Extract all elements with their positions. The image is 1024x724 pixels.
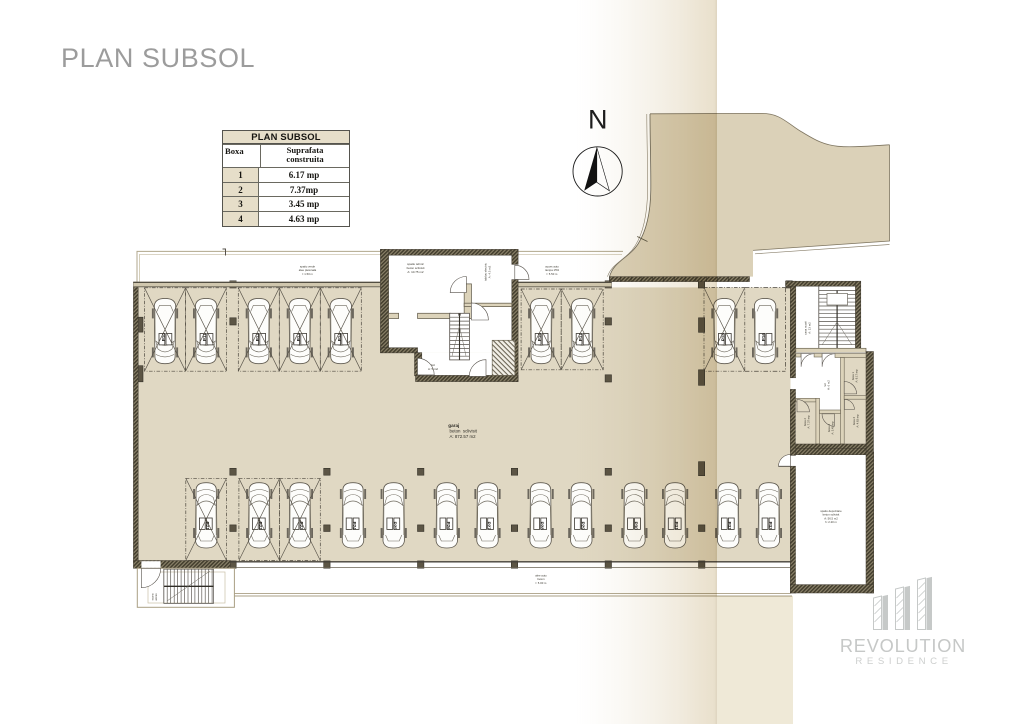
svg-text:A: 3.45 mp: A: 3.45 mp (831, 421, 835, 435)
svg-text:P26: P26 (446, 522, 451, 531)
svg-text:l: 1.50 m: l: 1.50 m (302, 272, 313, 276)
svg-text:P27: P27 (487, 522, 492, 531)
svg-text:garaj: garaj (448, 423, 459, 428)
svg-text:l: 5.00 m: l: 5.00 m (536, 581, 547, 585)
svg-text:P11: P11 (202, 333, 207, 341)
svg-text:N: N (588, 105, 608, 135)
svg-text:P29: P29 (580, 522, 585, 531)
svg-text:A: 872.57 m2: A: 872.57 m2 (450, 434, 477, 439)
svg-text:P16: P16 (537, 333, 542, 342)
svg-text:P33: P33 (768, 522, 773, 531)
svg-text:boxa 3: boxa 3 (827, 423, 831, 432)
svg-text:acces: acces (154, 593, 158, 601)
svg-text:A: 4.63 mp: A: 4.63 mp (856, 414, 860, 428)
svg-text:P14: P14 (337, 333, 342, 342)
svg-text:A: 10.75 m2: A: 10.75 m2 (407, 270, 424, 274)
svg-text:P16: P16 (761, 333, 766, 342)
svg-text:A: 4.3 m2: A: 4.3 m2 (487, 265, 491, 278)
svg-text:A: 5 m2: A: 5 m2 (428, 367, 438, 371)
svg-text:P24: P24 (352, 522, 357, 531)
svg-text:P10: P10 (161, 333, 166, 342)
svg-text:P12: P12 (255, 333, 260, 342)
svg-text:A: 6.17 mp: A: 6.17 mp (855, 369, 859, 383)
svg-text:boxa 1: boxa 1 (851, 371, 855, 380)
svg-text:beton sclivisit: beton sclivisit (450, 429, 478, 434)
svg-text:A: 7.37 mp: A: 7.37 mp (807, 415, 811, 429)
svg-text:P31: P31 (674, 522, 679, 531)
svg-text:P25: P25 (393, 522, 398, 531)
svg-text:l: 5.50 m: l: 5.50 m (547, 272, 558, 276)
svg-text:A: 13 m2: A: 13 m2 (807, 322, 811, 334)
svg-text:boxa 4: boxa 4 (852, 416, 856, 425)
svg-text:boxa 2: boxa 2 (803, 417, 807, 426)
svg-text:P30: P30 (633, 522, 638, 531)
svg-text:h: 2.20 m: h: 2.20 m (825, 520, 837, 524)
svg-text:P17: P17 (578, 333, 583, 342)
svg-text:P13: P13 (296, 333, 301, 342)
svg-text:P32: P32 (727, 522, 732, 531)
svg-text:A: 6 m2: A: 6 m2 (827, 380, 831, 390)
svg-text:P15: P15 (720, 333, 725, 342)
svg-text:P28: P28 (540, 522, 545, 531)
